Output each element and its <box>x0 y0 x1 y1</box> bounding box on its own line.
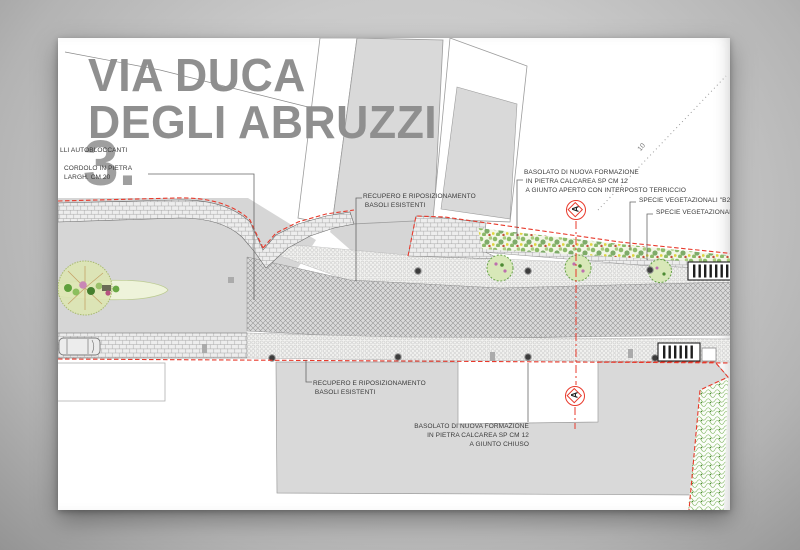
label-recupero-basoli-top: RECUPERO E RIPOSIZIONAMENTO BASOLI ESIST… <box>363 192 476 210</box>
label-basolato-giunto-aperto: BASOLATO DI NUOVA FORMAZIONE IN PIETRA C… <box>524 168 686 195</box>
label-cordolo-pietra: CORDOLO IN PIETRA LARGH. CM 20 <box>64 164 132 182</box>
section-marker-top: A <box>566 200 586 220</box>
label-specie-vegetazionali-b2: SPECIE VEGETAZIONALI "B2" <box>639 196 730 205</box>
drain-grate-top <box>688 262 730 280</box>
utility-box <box>702 348 716 361</box>
section-marker-letter: A <box>570 386 580 403</box>
drawing-sheet: 3. VIA DUCA DEGLI ABRUZZI LLI AUTOBLOCCA… <box>58 38 730 510</box>
street-name-title-line2: DEGLI ABRUZZI <box>88 99 437 145</box>
label-specie-vegetazionali-b1: SPECIE VEGETAZIONALI "B1 <box>656 208 730 217</box>
label-basolato-giunto-chiuso: BASOLATO DI NUOVA FORMAZIONE IN PIETRA C… <box>343 422 529 449</box>
drain-grate-bottom <box>658 343 700 361</box>
label-autobloccanti: LLI AUTOBLOCCANTI <box>60 146 127 155</box>
section-marker-letter: A <box>571 200 581 217</box>
section-marker-bottom: A <box>565 386 585 406</box>
street-name-title-line1: VIA DUCA <box>88 52 306 98</box>
parked-car <box>59 338 100 355</box>
desk-background: 3. VIA DUCA DEGLI ABRUZZI LLI AUTOBLOCCA… <box>0 0 800 550</box>
label-recupero-basoli-bottom: RECUPERO E RIPOSIZIONAMENTO BASOLI ESIST… <box>313 379 426 397</box>
